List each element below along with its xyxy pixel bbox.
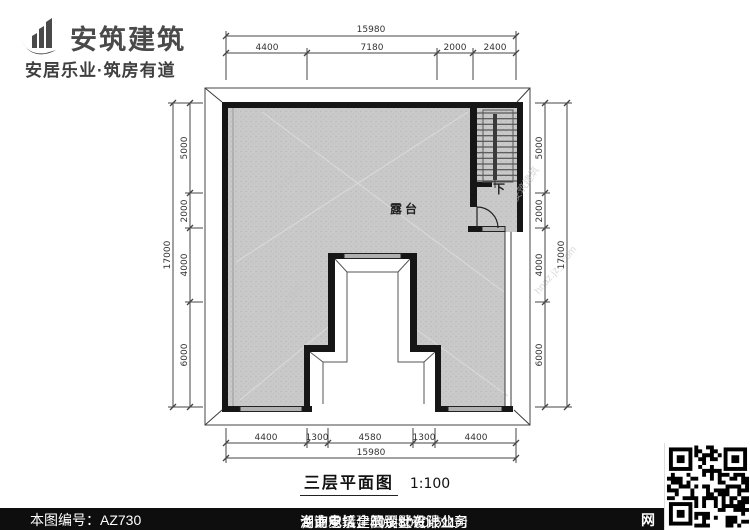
drawing-number: 本图编号：AZ730 [30, 510, 141, 530]
dim-right-3: 6000 [535, 343, 545, 366]
dim-bottom-1: 1300 [306, 433, 329, 443]
dim-bottom-total: 15980 [357, 448, 386, 458]
floor-plan: 下 露台 hnaz.jz_.com hnaz.jz_.com 安筑建筑 安筑建筑 [0, 0, 750, 530]
dim-left-total: 17000 [163, 240, 173, 269]
dim-top-total: 15980 [357, 25, 386, 35]
dim-left-1: 2000 [180, 199, 190, 222]
dim-bottom-4: 4400 [465, 433, 488, 443]
footer-bar: 本图编号：AZ730 湖南安筑建筑设计有限公司 专业承接全国别墅设计业务 咨询电… [0, 508, 750, 530]
window-bottom-left [240, 407, 302, 412]
dim-right-1: 2000 [535, 199, 545, 222]
drawing-title: 三层平面图 [300, 469, 398, 496]
dim-top-1: 7180 [361, 43, 384, 53]
dim-bottom-2: 4580 [359, 433, 382, 443]
qr-code [664, 443, 750, 530]
window-bottom-right [448, 407, 502, 412]
footer-phone: 咨询电话：400-8070-511 [300, 512, 456, 530]
stair-stringer [493, 114, 497, 180]
window-void-top [344, 254, 401, 259]
window-stairwell [482, 227, 505, 232]
room-label: 露台 [390, 201, 420, 216]
dim-right-2: 4000 [535, 253, 545, 276]
drawing-sheet: 安筑建筑 安居乐业·筑房有道 [0, 0, 750, 530]
dim-top-0: 4400 [256, 43, 279, 53]
dim-top-3: 2400 [484, 43, 507, 53]
footer-web-label: 网 [641, 510, 655, 530]
drawing-title-row: 三层平面图 1:100 [0, 469, 750, 496]
dim-bottom-0: 4400 [255, 433, 278, 443]
drawing-scale: 1:100 [410, 476, 450, 492]
dim-right-total: 17000 [557, 240, 567, 269]
dim-left-3: 6000 [180, 343, 190, 366]
dim-right-0: 5000 [535, 136, 545, 159]
dim-top-2: 2000 [444, 43, 467, 53]
dim-left-2: 4000 [180, 253, 190, 276]
dim-bottom-3: 1300 [413, 433, 436, 443]
dim-left-0: 5000 [180, 136, 190, 159]
stair-down-label: 下 [493, 182, 505, 196]
